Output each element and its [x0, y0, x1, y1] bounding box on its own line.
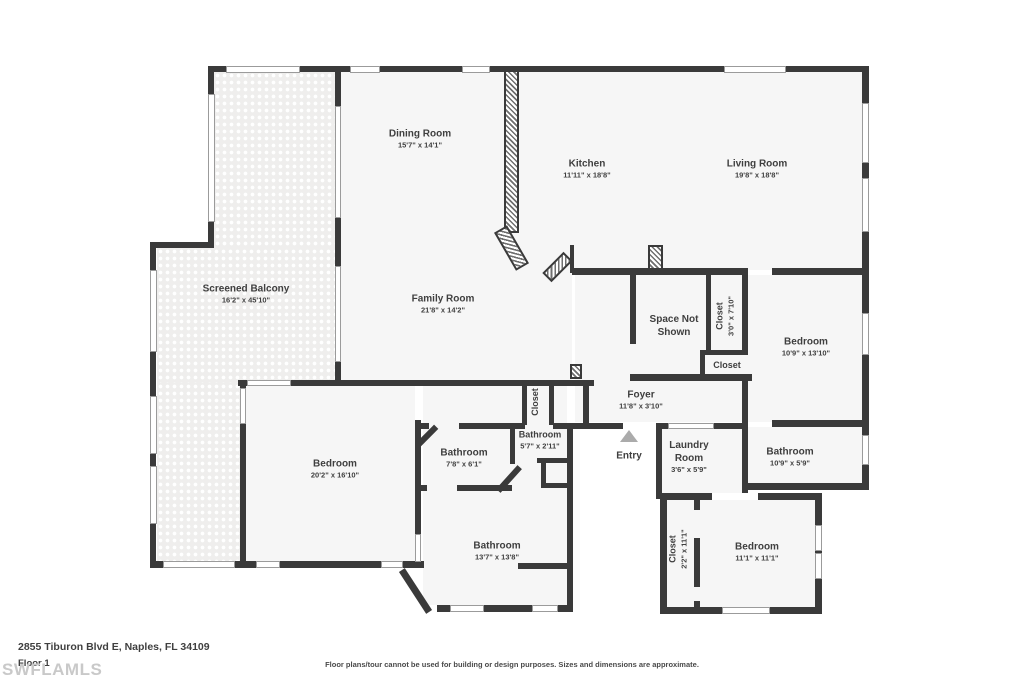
- window: [450, 605, 484, 612]
- window: [208, 94, 215, 222]
- window: [462, 66, 490, 73]
- floor-plan-drawing: [0, 0, 1024, 682]
- window: [335, 106, 341, 218]
- wall: [549, 380, 554, 425]
- wall: [703, 350, 748, 355]
- wall: [570, 245, 574, 273]
- room-floor: [423, 386, 567, 605]
- wall: [510, 458, 515, 463]
- wall: [694, 538, 700, 587]
- wall: [150, 242, 214, 248]
- window: [724, 66, 786, 73]
- mls-watermark: SWFLAMLS: [2, 660, 102, 680]
- hatched-wall: [504, 69, 519, 233]
- window: [350, 66, 380, 73]
- window: [862, 178, 869, 232]
- room-label-laundry-room: Laundry Room 3'6" x 5'9": [657, 439, 721, 475]
- window: [862, 313, 869, 355]
- wall: [518, 563, 570, 569]
- window: [862, 103, 869, 163]
- hatched-wall: [570, 364, 582, 379]
- entry-label: Entry: [616, 450, 642, 463]
- address-text: 2855 Tiburon Blvd E, Naples, FL 34109: [18, 641, 210, 653]
- wall: [417, 423, 429, 429]
- window: [381, 561, 403, 568]
- wall: [694, 601, 700, 614]
- wall: [742, 420, 748, 427]
- balcony-floor: [214, 72, 335, 248]
- wall: [660, 493, 712, 500]
- wall: [694, 493, 700, 510]
- wall: [742, 268, 748, 352]
- wall: [238, 380, 594, 386]
- window: [150, 396, 157, 454]
- wall: [459, 423, 525, 429]
- wall: [522, 380, 527, 425]
- window: [226, 66, 300, 73]
- wall: [700, 350, 705, 379]
- window: [722, 607, 770, 614]
- wall: [706, 268, 711, 352]
- room-label-space-not-shown: Space Not Shown: [639, 313, 709, 339]
- room-label-foyer: Foyer 11'8" x 3'10": [619, 389, 663, 412]
- wall: [415, 485, 427, 491]
- room-label-bedroom-bottom: Bedroom 11'1" x 11'1": [735, 541, 779, 564]
- room-label-closet-1: Closet 3'0" x 7'10": [714, 296, 735, 336]
- room-label-kitchen: Kitchen 11'11" x 18'8": [563, 158, 610, 181]
- wall: [660, 493, 667, 614]
- room-label-living-room: Living Room 19'8" x 18'8": [727, 158, 788, 181]
- wall: [772, 420, 868, 427]
- window: [415, 534, 421, 562]
- wall: [567, 423, 573, 612]
- wall: [583, 380, 589, 425]
- room-label-bathroom-2: Bathroom 5'7" x 2'11": [519, 429, 562, 450]
- window: [163, 561, 235, 568]
- window: [240, 388, 246, 424]
- balcony-floor: [157, 248, 335, 383]
- wall: [772, 268, 868, 275]
- window: [532, 605, 558, 612]
- window: [150, 466, 157, 524]
- wall: [572, 268, 748, 275]
- wall: [758, 493, 822, 500]
- window: [150, 270, 157, 352]
- wall: [630, 268, 636, 344]
- wall: [862, 66, 869, 272]
- wall: [630, 374, 752, 381]
- wall: [742, 374, 748, 493]
- room-label-bathroom-4: Bathroom 13'7" x 13'8": [473, 540, 520, 563]
- floor-plan-canvas: Dining Room 15'7" x 14'1" Kitchen 11'11"…: [0, 0, 1024, 682]
- room-label-dining-room: Dining Room 15'7" x 14'1": [389, 128, 451, 151]
- disclaimer-text: Floor plans/tour cannot be used for buil…: [325, 660, 699, 669]
- window: [815, 525, 822, 551]
- wall: [742, 483, 868, 490]
- window: [335, 266, 341, 362]
- window: [247, 380, 291, 386]
- entry-arrow-icon: [620, 430, 638, 442]
- window: [256, 561, 280, 568]
- room-label-bedroom-right: Bedroom 10'9" x 13'10": [782, 336, 830, 359]
- room-label-bathroom-3: Bathroom 10'9" x 5'9": [766, 446, 813, 469]
- room-label-bathroom-1: Bathroom 7'8" x 6'1": [440, 447, 487, 470]
- room-label-closet-4: Closet 2'2" x 11'1": [667, 529, 688, 568]
- window: [815, 553, 822, 579]
- balcony-floor: [157, 383, 240, 563]
- window: [668, 423, 714, 429]
- room-label-closet-2: Closet: [713, 360, 741, 372]
- room-label-family-room: Family Room 21'8" x 14'2": [412, 293, 475, 316]
- wall: [553, 423, 623, 429]
- room-label-bedroom-left: Bedroom 20'2" x 16'10": [311, 458, 359, 481]
- window: [862, 435, 869, 465]
- room-label-closet-3: Closet: [530, 388, 542, 416]
- room-label-screened-balcony: Screened Balcony 16'2" x 45'10": [203, 283, 290, 306]
